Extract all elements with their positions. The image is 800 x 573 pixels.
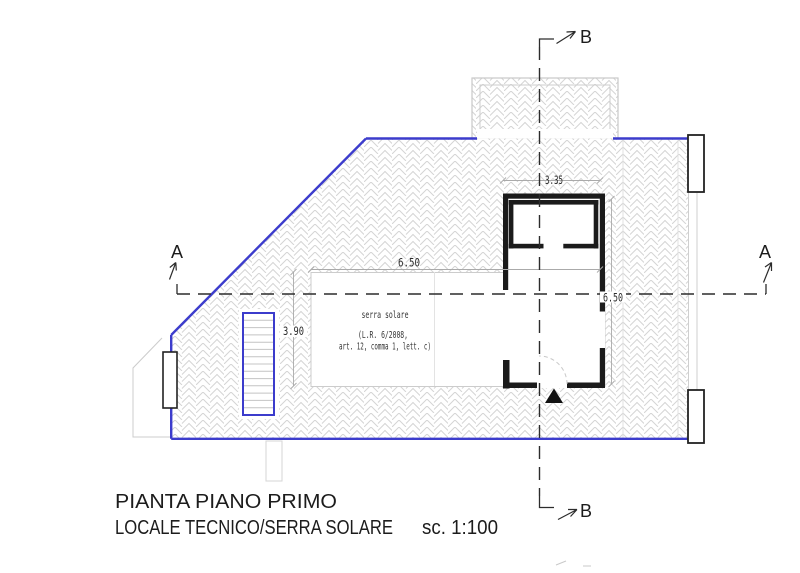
protrusion-gap — [477, 129, 613, 139]
section-label-a-left: A — [171, 242, 183, 262]
right-upper-window-block — [688, 135, 704, 192]
section-label-b-top: B — [580, 27, 592, 47]
section-arrow-a-right — [764, 263, 772, 283]
section-label-a-right: A — [759, 242, 771, 262]
plan-scale-label: sc. 1:100 — [422, 517, 498, 539]
section-arrow-a-left — [170, 263, 177, 280]
section-arrow-b-bottom — [558, 510, 577, 520]
plan-title-line2: LOCALE TECNICO/SERRA SOLARE — [115, 517, 393, 539]
dim-room-depth: 6.50 — [603, 291, 623, 305]
section-label-b-bottom: B — [580, 501, 592, 521]
floor-plan-sheet: 3.35 6.50 3.90 6.50 serra solare (L.R. 6… — [0, 0, 800, 573]
lower-shaft-outline — [266, 441, 282, 481]
staircase — [243, 313, 274, 415]
left-window-block — [163, 352, 177, 408]
serra-annotation-ref1: (L.R. 6/2008, — [358, 330, 408, 341]
right-lower-window-block — [688, 390, 704, 443]
serra-annotation-title: serra solare — [362, 310, 409, 321]
technical-room-interior — [503, 194, 605, 389]
section-arrow-b-top — [557, 32, 576, 44]
dim-serra-width: 6.50 — [398, 256, 420, 270]
dim-stair-depth: 3.90 — [283, 324, 304, 338]
plan-title-line1: PIANTA PIANO PRIMO — [115, 491, 337, 513]
serra-annotation-ref2: art. 12, comma 1, lett. c) — [339, 342, 431, 353]
clipped-marker-fragment — [556, 561, 591, 566]
dim-top-room-width: 3.35 — [545, 173, 563, 187]
plan-drawing: 3.35 6.50 3.90 6.50 serra solare (L.R. 6… — [0, 0, 800, 573]
